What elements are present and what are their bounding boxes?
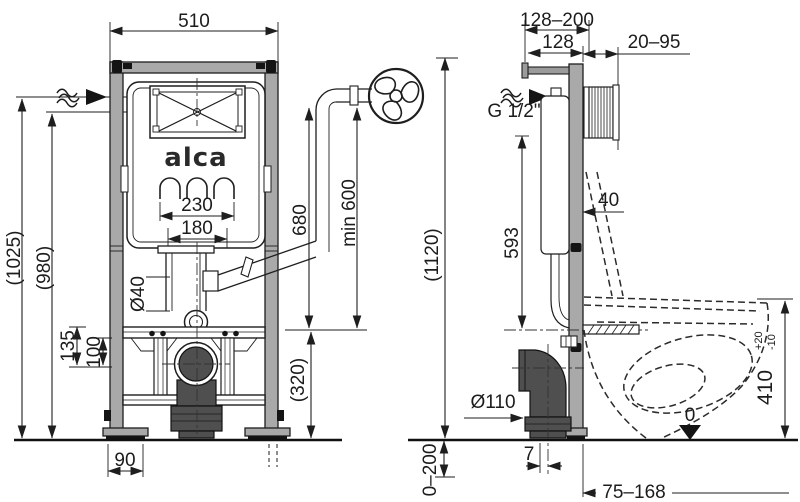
dim-40-label: 40	[598, 190, 619, 211]
dim-width-510: 510	[110, 11, 278, 62]
wall-bracket-rod	[522, 63, 569, 78]
water-thread-label: G 1/2"	[487, 101, 540, 122]
dim-410-tol-minus: -10	[766, 334, 778, 350]
dim-1025-label: (1025)	[4, 231, 25, 286]
dim-heights-left: (1025) (980) 135 100	[4, 99, 112, 438]
dim-510-label: 510	[178, 11, 210, 32]
wc-frame-installation-drawing: 510	[0, 0, 800, 502]
dim-110-label: Ø110	[470, 392, 515, 413]
dim-410-tol-plus: +20	[753, 331, 765, 350]
dim-floor-buildup: 0–200	[420, 441, 455, 496]
front-view: 510	[4, 11, 423, 477]
inspection-opening	[150, 78, 245, 138]
dim-180-label: 180	[181, 218, 213, 239]
dim-bracket-fixed: 128	[528, 32, 583, 62]
dim-320-label: (320)	[288, 358, 309, 402]
brand-logo: alca	[164, 143, 227, 173]
datum-triangle-icon	[679, 425, 701, 440]
dim-128-label: 128	[542, 32, 574, 53]
dim-20-95-label: 20–95	[628, 32, 681, 53]
waste-outlet-front	[162, 343, 230, 439]
dim-outlet-offset: 7	[524, 443, 562, 473]
dim-593-label: 593	[502, 227, 523, 259]
dim-d40-label: Ø40	[128, 276, 149, 312]
floor-datum: 0	[679, 405, 701, 440]
dim-overall-height: (1120)	[422, 58, 458, 438]
dim-128-200-label: 128–200	[520, 10, 594, 31]
dim-min600-label: min 600	[339, 179, 360, 247]
dim-135-label: 135	[58, 330, 79, 362]
dim-bowl-depth: 75–168	[583, 444, 789, 502]
flush-rosette-icon	[369, 69, 423, 123]
dim-bowl-height: 410 +20 -10	[753, 299, 793, 438]
water-inlet-arrow-icon	[57, 89, 107, 107]
actuator-module	[584, 85, 619, 140]
dim-100-label: 100	[84, 336, 105, 368]
datum-zero-label: 0	[685, 405, 696, 426]
dim-90-label: 90	[114, 450, 135, 471]
dim-0-200-label: 0–200	[420, 444, 441, 497]
side-view: 128–200 128 20–95 G 1/2"	[408, 10, 798, 502]
dim-980-label: (980)	[34, 246, 55, 290]
dim-410-label: 410	[754, 370, 777, 405]
dim-foot: 90	[108, 444, 143, 477]
dim-230-label: 230	[181, 195, 213, 216]
cistern-side	[541, 96, 569, 328]
dim-1120-label: (1120)	[422, 228, 443, 282]
dim-outlet-height: (320)	[288, 332, 311, 438]
dim-waste-dia: Ø110	[464, 392, 523, 418]
dim-inlet-height: 593	[502, 136, 529, 328]
dim-75-168-label: 75–168	[602, 482, 665, 502]
dim-680-label: 680	[290, 204, 311, 236]
dim-7-label: 7	[524, 444, 535, 465]
